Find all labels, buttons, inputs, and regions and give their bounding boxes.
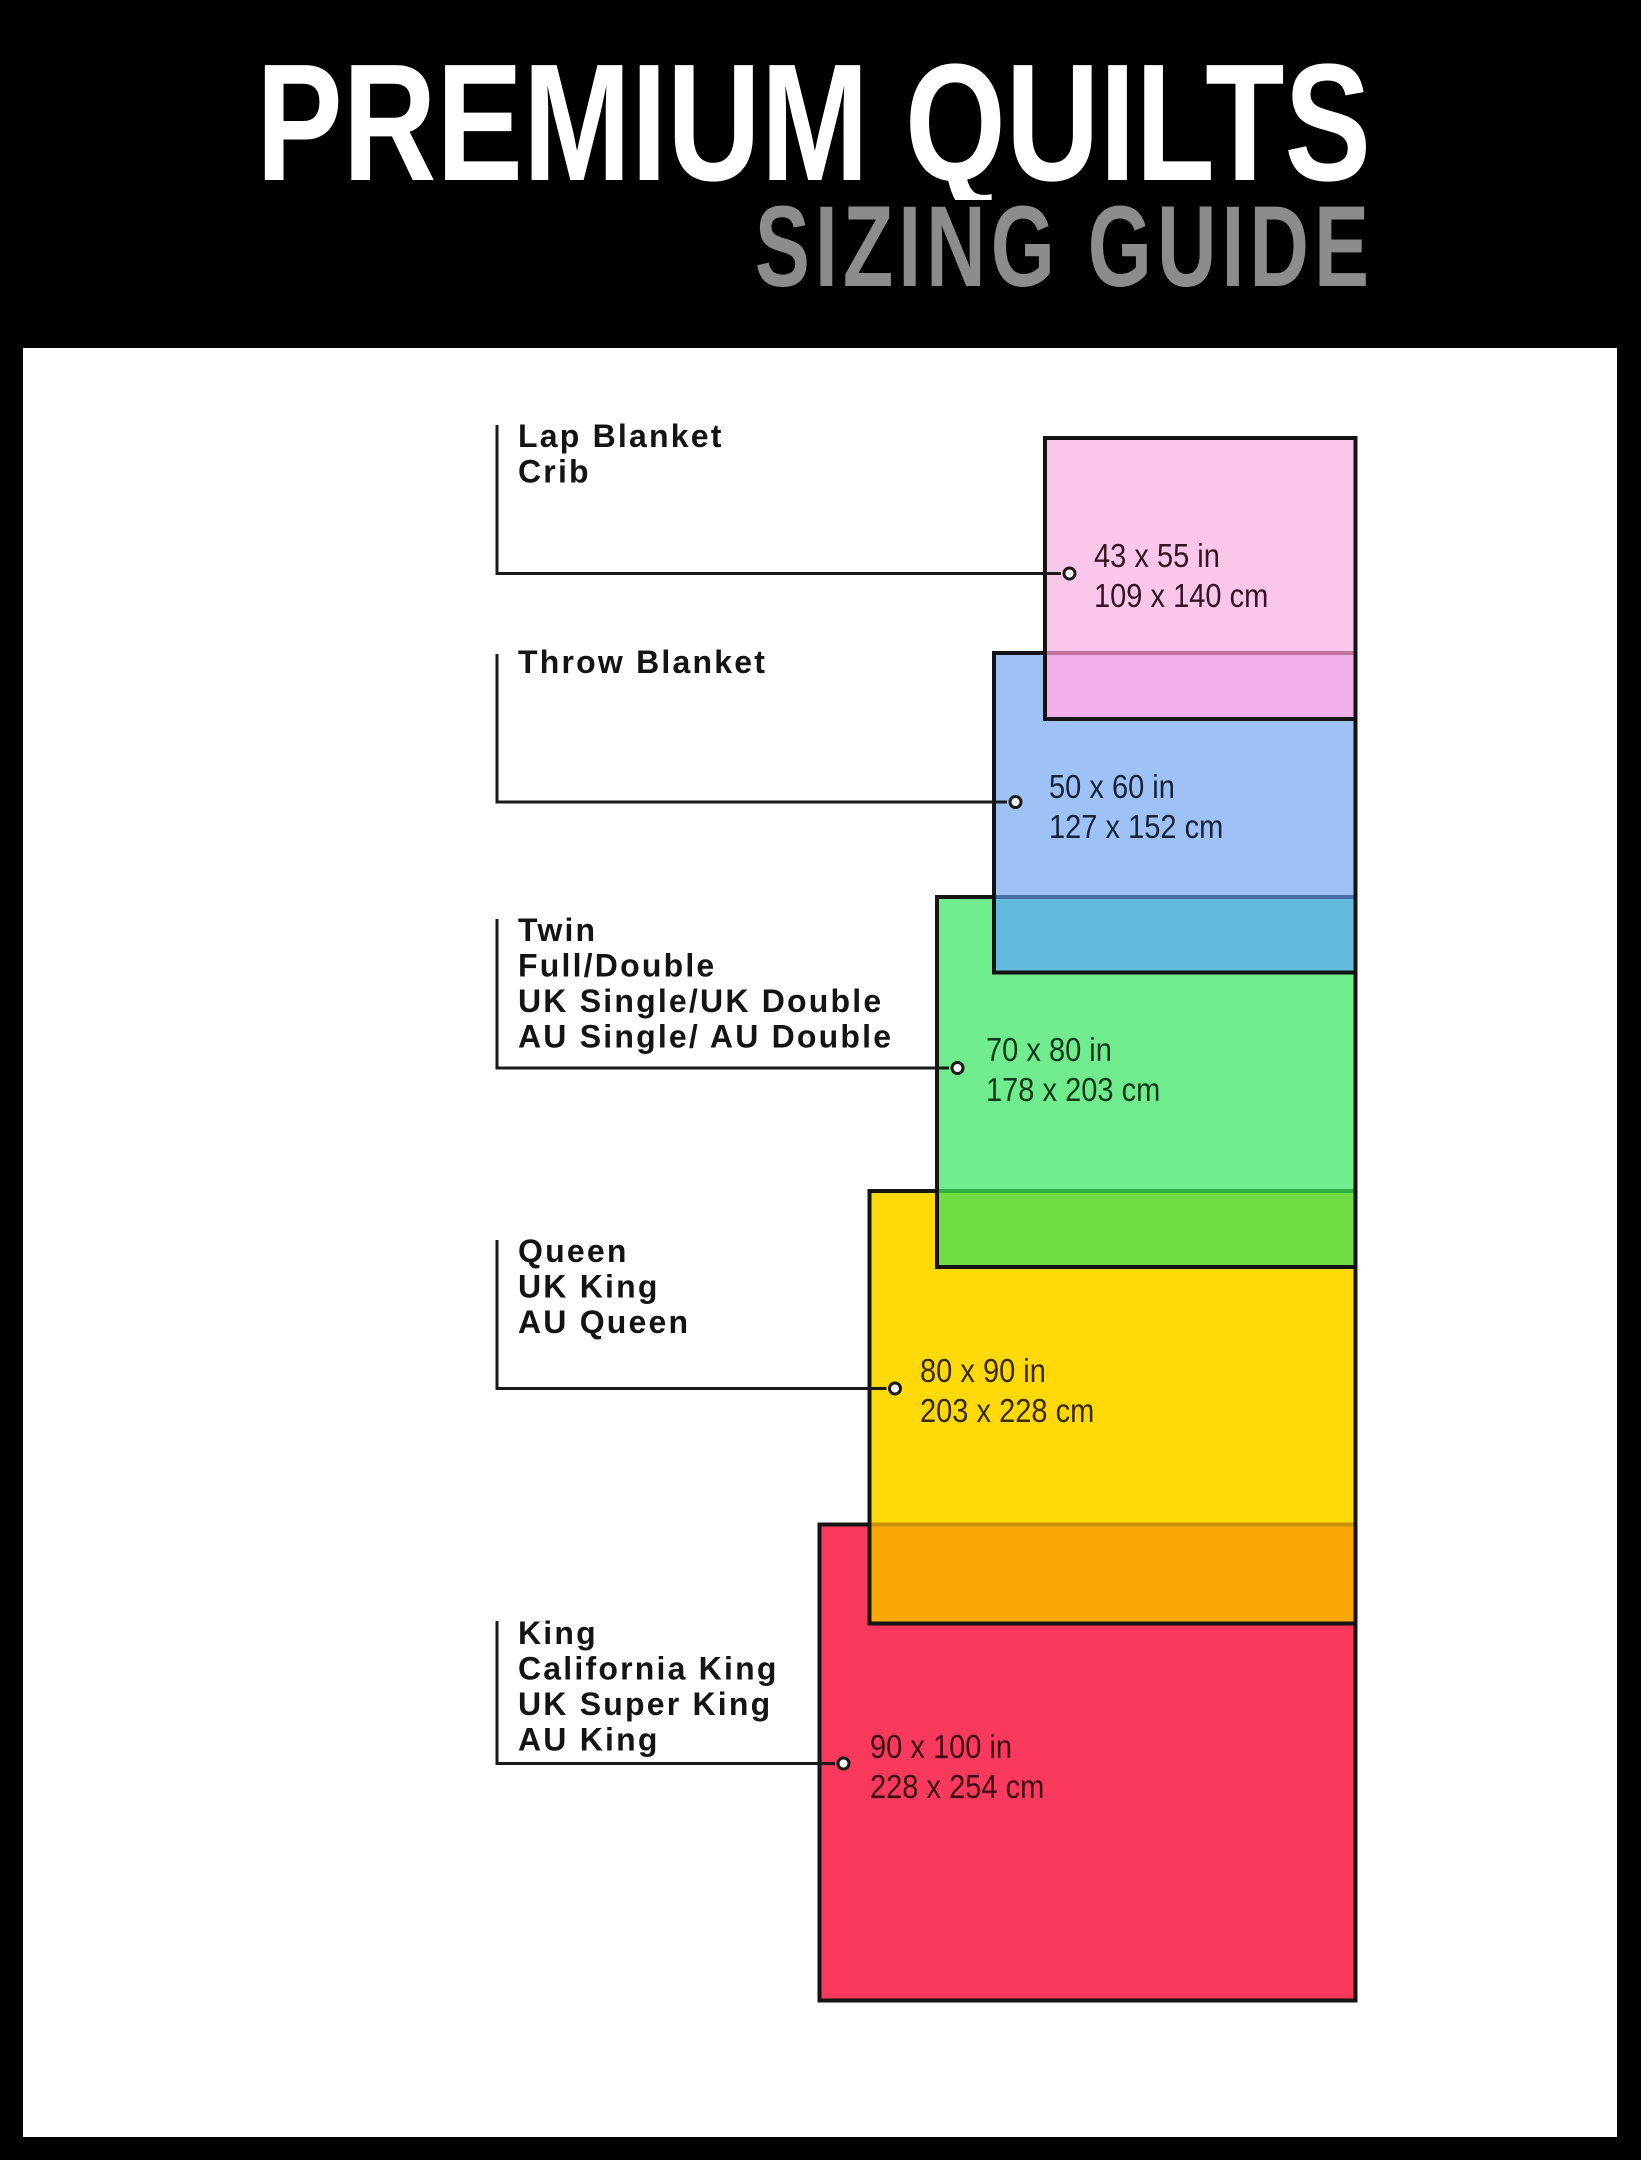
svg-text:UK Single/UK Double: UK Single/UK Double bbox=[518, 983, 883, 1019]
svg-text:California King: California King bbox=[518, 1651, 779, 1687]
svg-text:Twin: Twin bbox=[518, 912, 597, 948]
svg-text:127 x 152 cm: 127 x 152 cm bbox=[1049, 808, 1223, 845]
svg-text:AU Queen: AU Queen bbox=[518, 1304, 690, 1340]
svg-text:UK King: UK King bbox=[518, 1269, 660, 1305]
svg-text:Throw Blanket: Throw Blanket bbox=[518, 644, 767, 680]
svg-text:Queen: Queen bbox=[518, 1233, 629, 1269]
svg-text:Full/Double: Full/Double bbox=[518, 948, 716, 984]
svg-text:Crib: Crib bbox=[518, 454, 591, 490]
svg-text:Lap Blanket: Lap Blanket bbox=[518, 418, 724, 454]
svg-text:90 x 100 in: 90 x 100 in bbox=[870, 1728, 1012, 1765]
svg-text:70 x 80 in: 70 x 80 in bbox=[986, 1031, 1112, 1068]
svg-text:50 x 60 in: 50 x 60 in bbox=[1049, 768, 1175, 805]
svg-text:AU Single/ AU Double: AU Single/ AU Double bbox=[518, 1019, 893, 1055]
svg-text:228 x 254 cm: 228 x 254 cm bbox=[870, 1768, 1044, 1805]
svg-text:UK Super King: UK Super King bbox=[518, 1686, 772, 1722]
svg-text:80 x 90 in: 80 x 90 in bbox=[920, 1352, 1046, 1389]
svg-text:SIZING GUIDE: SIZING GUIDE bbox=[755, 183, 1374, 312]
svg-text:43 x 55 in: 43 x 55 in bbox=[1094, 537, 1220, 574]
svg-text:King: King bbox=[518, 1615, 598, 1651]
svg-text:203 x 228 cm: 203 x 228 cm bbox=[920, 1392, 1094, 1429]
svg-text:109 x 140 cm: 109 x 140 cm bbox=[1094, 577, 1268, 614]
svg-text:178 x 203 cm: 178 x 203 cm bbox=[986, 1071, 1160, 1108]
svg-text:AU King: AU King bbox=[518, 1722, 660, 1758]
